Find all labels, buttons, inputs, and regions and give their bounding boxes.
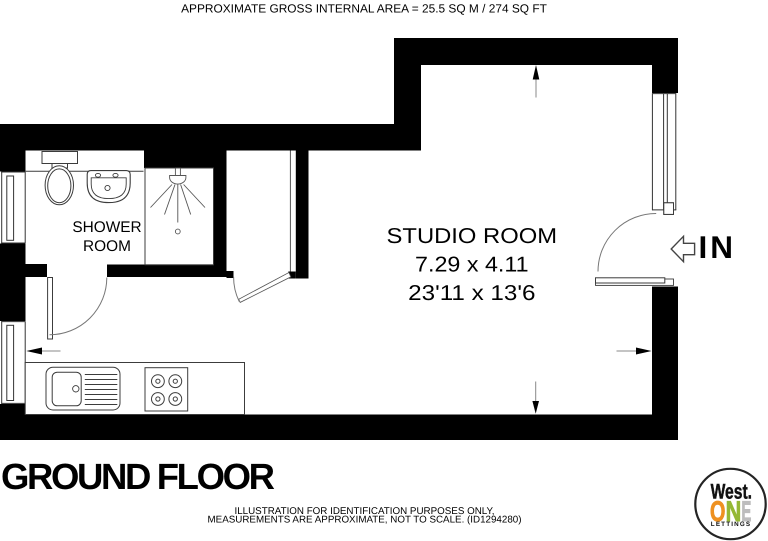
svg-text:APPROXIMATE GROSS INTERNAL ARE: APPROXIMATE GROSS INTERNAL AREA = 25.5 S… xyxy=(181,1,547,15)
svg-text:GROUND FLOOR: GROUND FLOOR xyxy=(1,456,275,497)
svg-text:LETTINGS: LETTINGS xyxy=(711,521,752,528)
svg-text:23'11 x 13'6: 23'11 x 13'6 xyxy=(408,281,535,305)
svg-text:SHOWER: SHOWER xyxy=(72,219,141,236)
svg-text:7.29 x 4.11: 7.29 x 4.11 xyxy=(415,253,529,277)
svg-text:MEASUREMENTS ARE APPROXIMATE,: MEASUREMENTS ARE APPROXIMATE, NOT TO SCA… xyxy=(208,515,522,526)
svg-text:ROOM: ROOM xyxy=(83,238,131,255)
svg-text:STUDIO ROOM: STUDIO ROOM xyxy=(387,224,558,248)
svg-text:IN: IN xyxy=(699,229,734,265)
